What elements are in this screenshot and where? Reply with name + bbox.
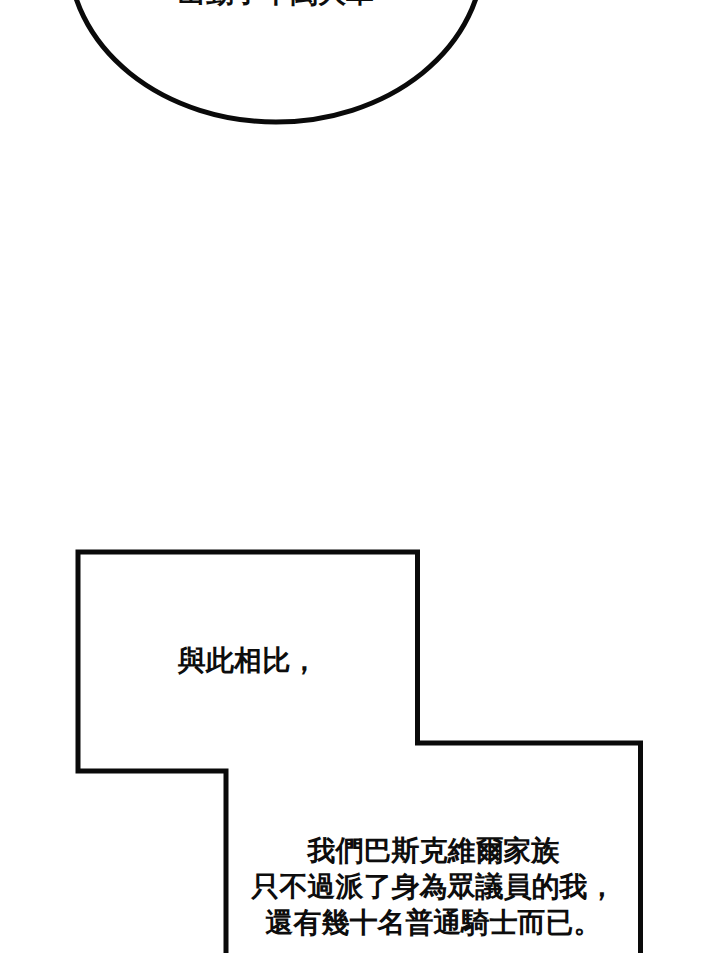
bottom-bubble-line-1: 我們巴斯克維爾家族 [226, 833, 641, 869]
speech-bubble-shapes [0, 0, 720, 953]
top-bubble-clipped-text: 出動了十萬大軍 [96, 0, 456, 7]
bottom-bubble-text: 我們巴斯克維爾家族 只不過派了身為眾議員的我， 還有幾十名普通騎士而已。 [226, 833, 641, 941]
top-speech-bubble-shape [69, 0, 483, 122]
bottom-bubble-line-2: 只不過派了身為眾議員的我， [226, 869, 641, 905]
comic-panel-page: 出動了十萬大軍 與此相比， 我們巴斯克維爾家族 只不過派了身為眾議員的我， 還有… [0, 0, 720, 953]
bottom-bubble-line-3: 還有幾十名普通騎士而已。 [226, 905, 641, 941]
middle-bubble-text: 與此相比， [80, 554, 416, 768]
